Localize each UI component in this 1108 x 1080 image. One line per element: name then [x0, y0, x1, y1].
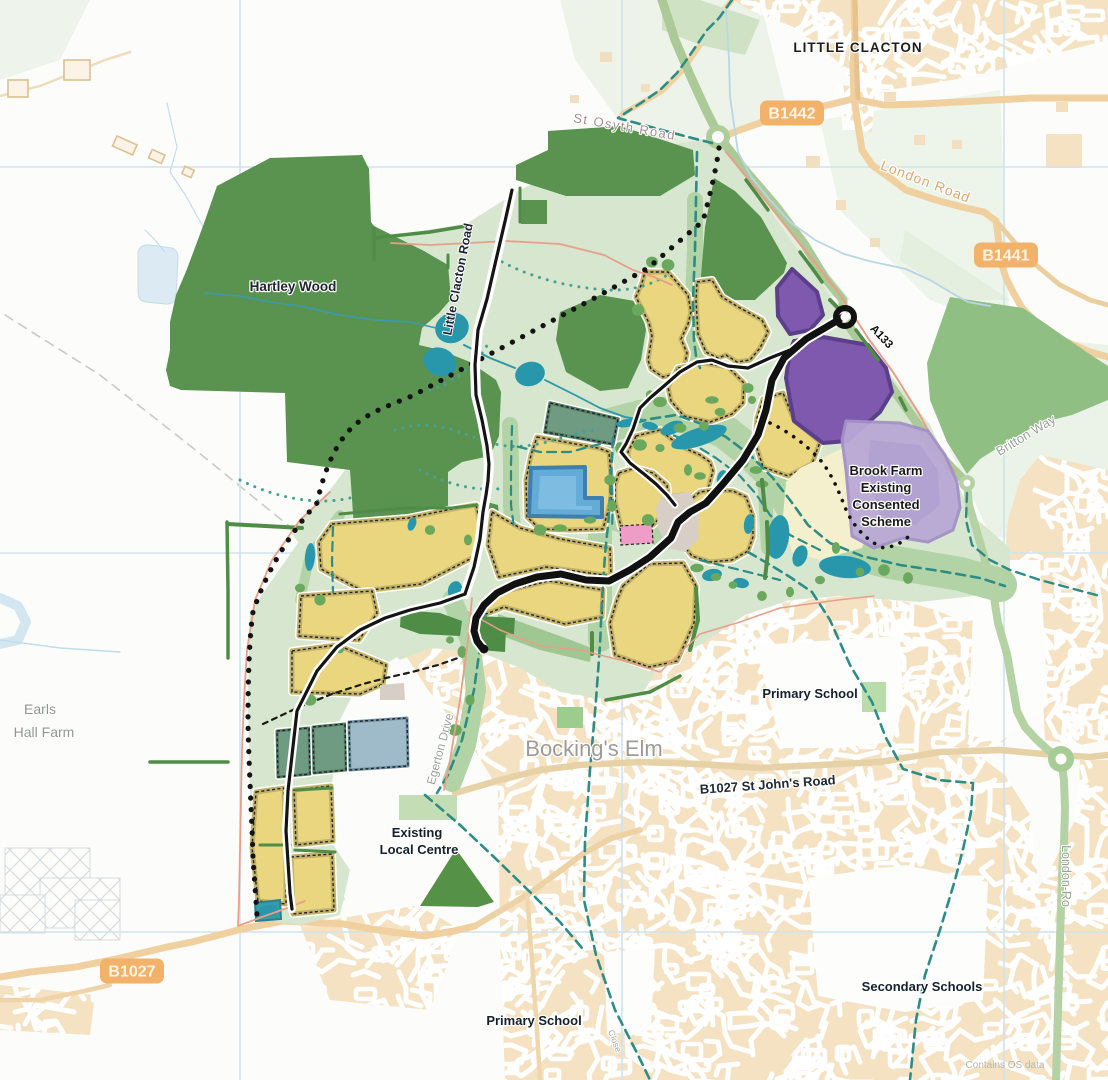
svg-text:Earls: Earls: [24, 701, 56, 717]
svg-text:Scheme: Scheme: [861, 514, 911, 529]
svg-text:Secondary Schools: Secondary Schools: [862, 979, 983, 994]
svg-text:Hall Farm: Hall Farm: [14, 724, 75, 740]
svg-text:London-Ro: London-Ro: [1059, 845, 1073, 907]
svg-text:B1027: B1027: [108, 964, 155, 981]
svg-text:B1442: B1442: [768, 106, 815, 123]
svg-text:Hartley Wood: Hartley Wood: [250, 279, 337, 294]
svg-text:Consented: Consented: [852, 497, 919, 512]
svg-text:Primary School: Primary School: [762, 686, 857, 701]
svg-text:Brook Farm: Brook Farm: [850, 463, 923, 478]
svg-text:Primary School: Primary School: [486, 1013, 581, 1028]
svg-text:LITTLE CLACTON: LITTLE CLACTON: [793, 40, 922, 55]
svg-text:Bocking's Elm: Bocking's Elm: [525, 736, 662, 761]
svg-text:Local Centre: Local Centre: [380, 842, 459, 857]
svg-text:Existing: Existing: [392, 825, 443, 840]
svg-text:Existing: Existing: [861, 480, 912, 495]
svg-text:B1441: B1441: [982, 248, 1029, 265]
svg-text:Contains OS data: Contains OS data: [966, 1060, 1045, 1071]
